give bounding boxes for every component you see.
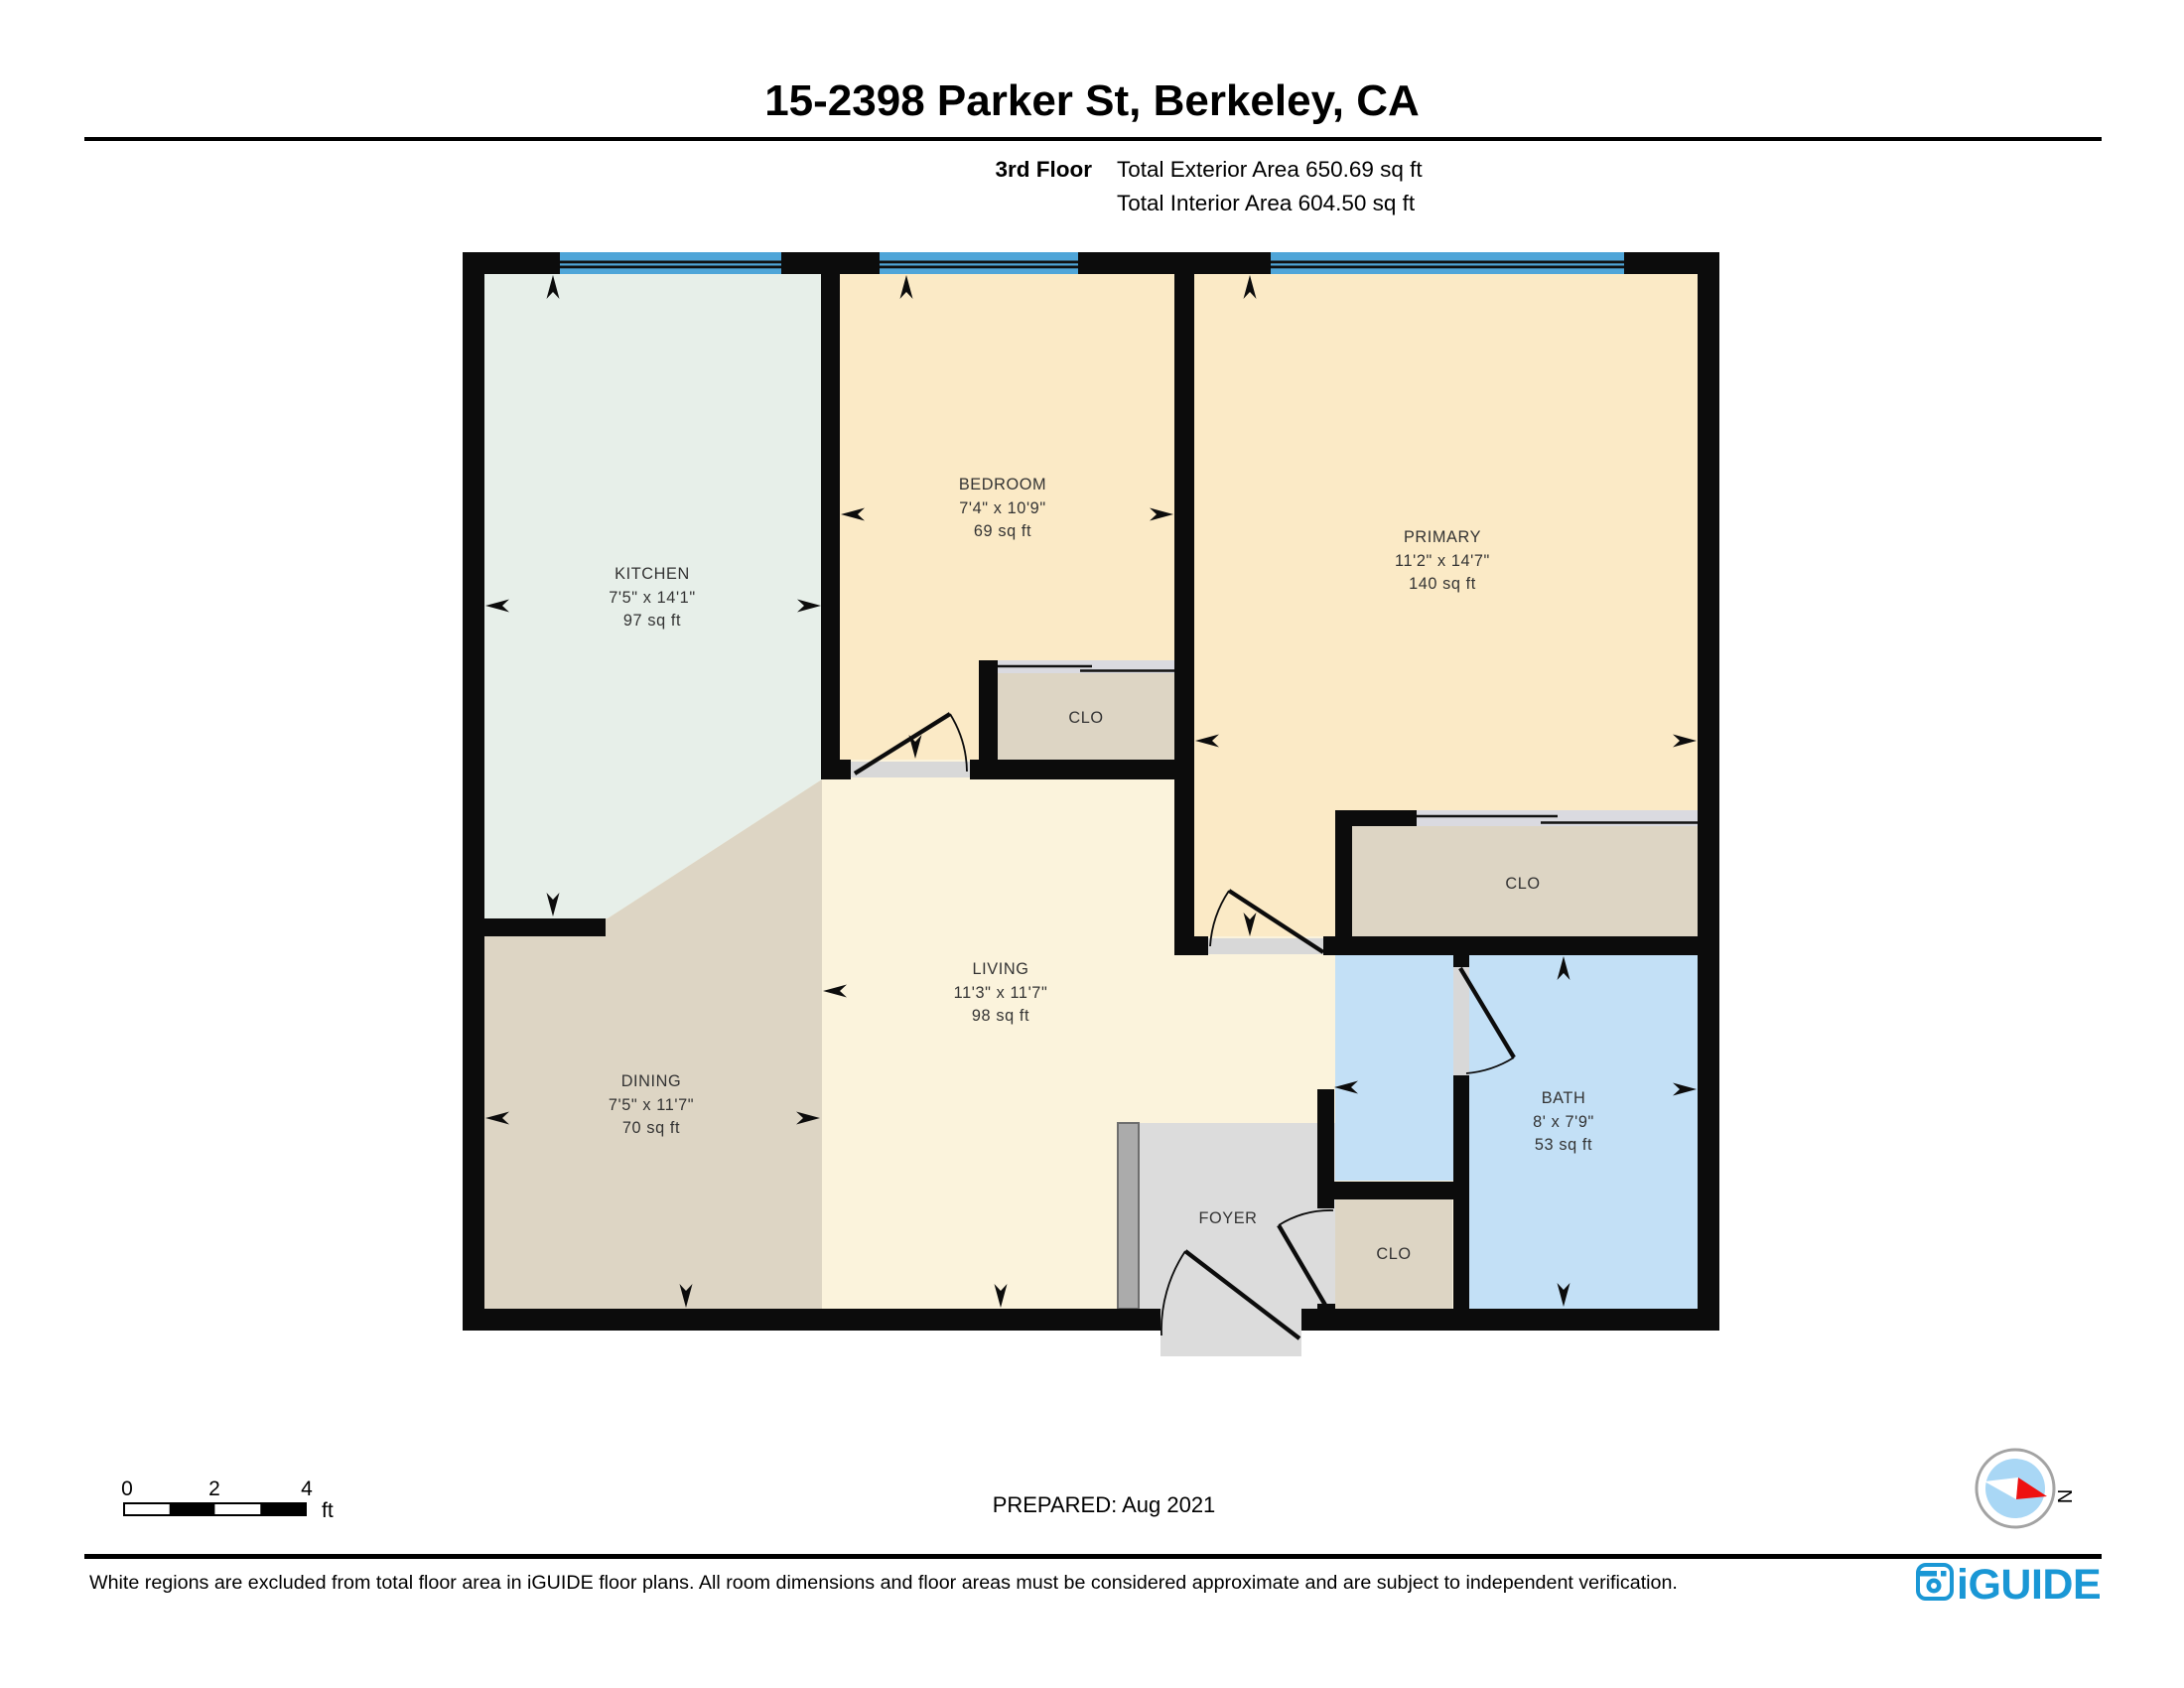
svg-text:11'3" x 11'7": 11'3" x 11'7" <box>954 984 1048 1002</box>
svg-text:PREPARED: Aug 2021: PREPARED: Aug 2021 <box>993 1492 1216 1517</box>
svg-text:iGUIDE: iGUIDE <box>1957 1561 2101 1609</box>
svg-text:8' x 7'9": 8' x 7'9" <box>1533 1113 1594 1131</box>
svg-text:7'4" x 10'9": 7'4" x 10'9" <box>959 499 1045 517</box>
svg-text:140 sq ft: 140 sq ft <box>1409 575 1476 593</box>
svg-text:CLO: CLO <box>1505 875 1540 893</box>
svg-text:BEDROOM: BEDROOM <box>959 476 1046 493</box>
svg-text:11'2" x 14'7": 11'2" x 14'7" <box>1395 552 1490 570</box>
svg-text:70 sq ft: 70 sq ft <box>622 1119 680 1137</box>
svg-text:FOYER: FOYER <box>1198 1209 1257 1227</box>
svg-text:4: 4 <box>301 1477 313 1500</box>
svg-text:N: N <box>2053 1489 2075 1503</box>
svg-text:97 sq ft: 97 sq ft <box>623 612 681 630</box>
svg-text:0: 0 <box>121 1477 133 1500</box>
svg-text:69 sq ft: 69 sq ft <box>974 522 1031 540</box>
svg-text:98 sq ft: 98 sq ft <box>972 1007 1029 1025</box>
svg-text:PRIMARY: PRIMARY <box>1404 528 1481 546</box>
svg-text:LIVING: LIVING <box>973 960 1029 978</box>
svg-text:DINING: DINING <box>621 1072 682 1090</box>
svg-text:CLO: CLO <box>1376 1245 1411 1263</box>
svg-text:2: 2 <box>208 1477 220 1500</box>
svg-text:CLO: CLO <box>1068 709 1103 727</box>
svg-text:BATH: BATH <box>1542 1089 1586 1107</box>
svg-text:ft: ft <box>322 1499 334 1522</box>
svg-text:53 sq ft: 53 sq ft <box>1535 1136 1592 1154</box>
svg-text:KITCHEN: KITCHEN <box>614 565 690 583</box>
svg-text:7'5" x 11'7": 7'5" x 11'7" <box>609 1096 694 1114</box>
svg-text:7'5" x 14'1": 7'5" x 14'1" <box>609 589 695 607</box>
